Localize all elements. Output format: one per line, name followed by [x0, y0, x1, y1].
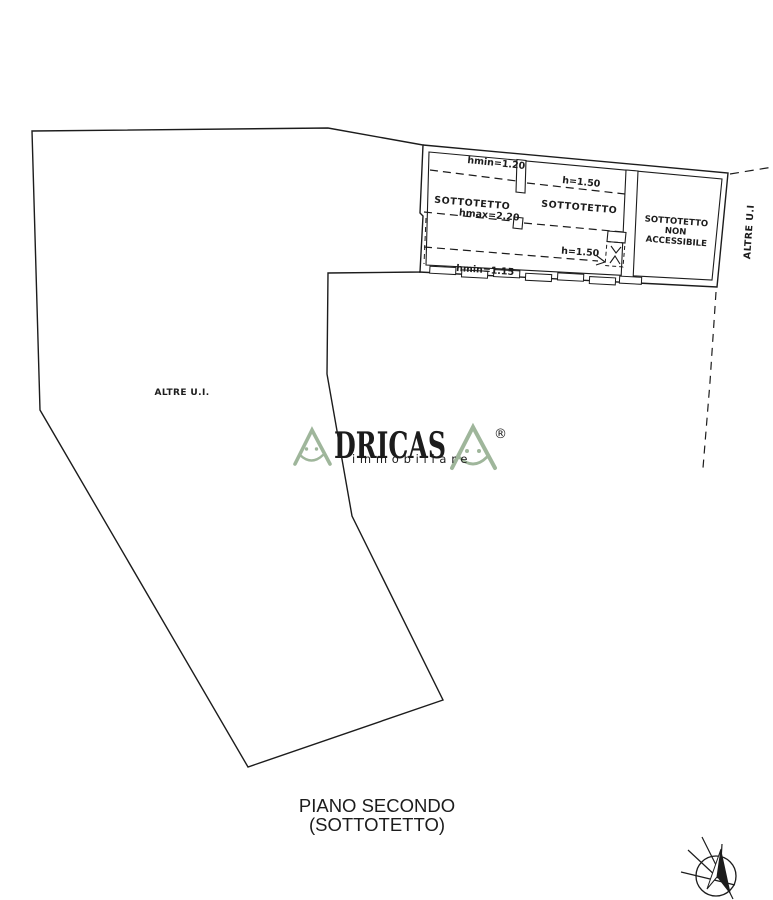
- caption-line1: PIANO SECONDO: [299, 795, 455, 816]
- registered-mark: ®: [494, 427, 507, 442]
- hatch-chevron-down: [611, 246, 621, 253]
- hatch-chevron-up: [610, 256, 620, 264]
- adricasa-logo: DRICAS ® immobiliare: [295, 425, 507, 468]
- hatch-top-box: [607, 231, 626, 243]
- room-label-sottotetto-middle: SOTTOTETTO: [541, 199, 618, 217]
- label-h-lower: h=1.50: [561, 246, 600, 260]
- logo-tagline: immobiliare: [352, 452, 472, 466]
- label-hmax: hmax=2.20: [459, 207, 521, 223]
- label-hmin-top: hmin=1.20: [467, 155, 526, 172]
- label-altre-ui-main: ALTRE U.I.: [154, 388, 209, 398]
- room-label-non-accessible: SOTTOTETTO NON ACCESSIBILE: [643, 214, 712, 249]
- north-compass-icon: [681, 837, 736, 899]
- partition-wall-right: [621, 170, 638, 281]
- label-altre-ui-side: ALTRE U.I: [742, 204, 757, 259]
- floor-plan-page: DRICAS ® immobiliare: [0, 0, 773, 900]
- smiley-a-left-icon: [295, 430, 330, 464]
- contour-hmin-120: [430, 170, 517, 181]
- boundary-dashed-top-right: [730, 167, 773, 174]
- plan-labels: hmin=1.20 h=1.50 SOTTOTETTO SOTTOTETTO h…: [154, 155, 756, 398]
- floor-plan-drawing: DRICAS ® immobiliare: [0, 0, 773, 900]
- boundary-dashed-bottom-right: [703, 292, 716, 468]
- plan-caption: PIANO SECONDO (SOTTOTETTO): [299, 795, 455, 835]
- non-accessible-line3: ACCESSIBILE: [645, 235, 707, 250]
- caption-line2: (SOTTOTETTO): [309, 814, 445, 835]
